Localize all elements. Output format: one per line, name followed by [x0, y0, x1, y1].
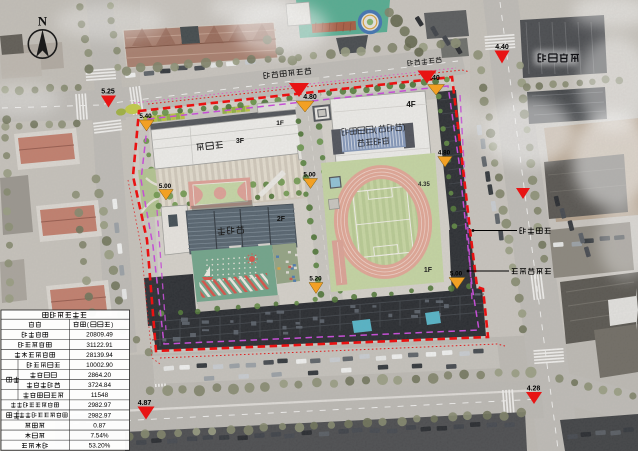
svg-text:5.00: 5.00: [159, 183, 172, 190]
svg-text:5.25: 5.25: [101, 89, 115, 96]
svg-text:4.40: 4.40: [495, 44, 509, 51]
svg-text:10002.90: 10002.90: [86, 362, 113, 369]
svg-text:20809.49: 20809.49: [86, 332, 113, 339]
svg-text:4.28: 4.28: [527, 386, 541, 393]
svg-text:31122.91: 31122.91: [86, 342, 113, 349]
svg-text:53.20%: 53.20%: [89, 443, 111, 450]
svg-text:2982.97: 2982.97: [88, 412, 112, 419]
svg-text:3724.84: 3724.84: [88, 382, 112, 389]
svg-text:2982.97: 2982.97: [88, 402, 112, 409]
svg-text:5.00: 5.00: [303, 172, 316, 179]
svg-text:): ): [111, 322, 113, 329]
svg-text:7.54%: 7.54%: [90, 433, 108, 440]
svg-text:28139.94: 28139.94: [86, 352, 113, 359]
svg-text:5.20: 5.20: [309, 276, 322, 283]
svg-text:5.40: 5.40: [139, 113, 152, 120]
svg-text:N: N: [38, 14, 48, 29]
svg-text:4.87: 4.87: [138, 400, 152, 407]
svg-text:5.00: 5.00: [450, 271, 463, 278]
svg-text:4.80: 4.80: [303, 94, 317, 101]
svg-text:0.87: 0.87: [93, 422, 106, 429]
svg-text:4.80: 4.80: [438, 150, 451, 157]
svg-text:11548: 11548: [91, 392, 109, 399]
svg-text:2864.20: 2864.20: [88, 372, 112, 379]
